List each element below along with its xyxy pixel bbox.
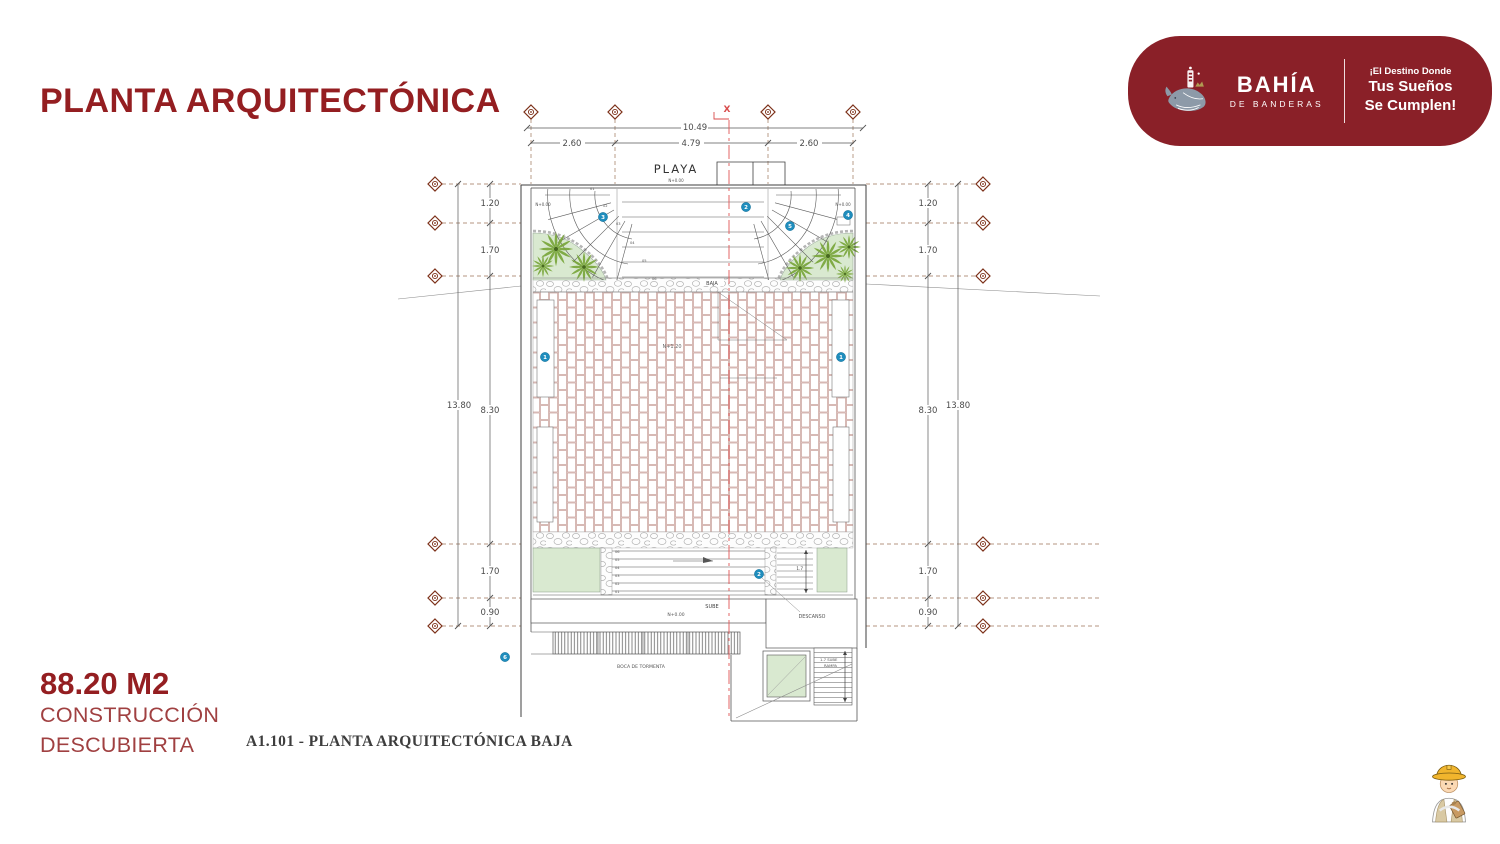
- area-label-line2: DESCUBIERTA: [40, 733, 194, 758]
- keynote-marker-1-right: 1: [836, 352, 845, 361]
- step-label: 05: [615, 558, 620, 562]
- area-label-line1: CONSTRUCCIÓN: [40, 703, 219, 728]
- dim-right-row4: 1.70: [919, 567, 938, 577]
- keynote-marker-1-left: 1: [540, 352, 549, 361]
- entry-level-left: N+0.00: [535, 202, 551, 207]
- step-label: 06: [615, 550, 620, 554]
- step-label: 01: [615, 590, 620, 594]
- slide: PLANTA ARQUITECTÓNICA BAHÍA DE BAND: [0, 0, 1500, 844]
- landing-strip: [531, 599, 766, 623]
- entry-level-right: N+0.00: [835, 202, 851, 207]
- playa-level-label: N+0.00: [668, 178, 684, 183]
- boca-de-tormenta: BOCA DE TORMENTA: [531, 632, 740, 670]
- keynote-marker-2: 2: [741, 202, 750, 211]
- courtyard-brick-paving: [533, 292, 853, 532]
- descanso-room: DESCANSO: [766, 599, 857, 648]
- svg-text:2: 2: [757, 572, 761, 578]
- stair-run-dim: 1.7: [796, 566, 803, 571]
- step-label: 02: [615, 582, 620, 586]
- svg-text:2: 2: [744, 205, 748, 211]
- lower-stair-band: 06 05 04 03 02 01 1.7: [533, 548, 853, 595]
- playa-label: PLAYA: [654, 162, 699, 176]
- svg-text:6: 6: [503, 655, 507, 661]
- keynote-marker-4: 4: [843, 210, 852, 219]
- stone-band-bottom: [533, 532, 853, 548]
- dim-top-center: 4.79: [682, 139, 701, 149]
- dim-top-total: 10.49: [683, 123, 707, 133]
- svg-text:1: 1: [839, 355, 843, 361]
- svg-text:5: 5: [788, 224, 792, 230]
- keynote-marker-6: 6: [500, 652, 509, 661]
- dim-left-row3: 8.30: [481, 406, 500, 416]
- descanso-label: DESCANSO: [799, 614, 826, 620]
- step-label: 06: [652, 277, 657, 281]
- step-label: 01: [590, 187, 595, 191]
- dim-left-row4: 1.70: [481, 567, 500, 577]
- dim-top-left: 2.60: [563, 139, 582, 149]
- step-label: 04: [615, 566, 620, 570]
- dim-top-right: 2.60: [800, 139, 819, 149]
- svg-text:4: 4: [846, 213, 850, 219]
- baja-label: BAJA: [706, 281, 718, 287]
- planter-lower-left: [533, 548, 600, 592]
- step-label: 02: [603, 204, 608, 208]
- dim-left-row5: 0.90: [481, 608, 500, 618]
- construction-worker-icon: [1424, 756, 1474, 824]
- entry-stair-step-numbers: 01 02 03 04 05 06: [590, 187, 657, 281]
- step-label: 03: [615, 574, 620, 578]
- dim-right-row1: 1.20: [919, 199, 938, 209]
- dim-right-row2: 1.70: [919, 246, 938, 256]
- dim-right-row5: 0.90: [919, 608, 938, 618]
- svg-text:1: 1: [543, 355, 547, 361]
- sube-label: SUBE: [705, 604, 718, 610]
- keynote-marker-2-stairs: 2: [754, 569, 763, 578]
- dim-left-row2: 1.70: [481, 246, 500, 256]
- svg-text:3: 3: [601, 215, 605, 221]
- step-label: 05: [642, 259, 647, 263]
- planter-lower-right: [817, 548, 847, 592]
- dim-left-total: 13.80: [447, 401, 471, 411]
- floor-plan-drawing: 10.49 2.60 4.79 2.60 1.20 1.70 8.30 1.70…: [0, 0, 1500, 844]
- ramp-label-line2: RAMPA: [824, 663, 837, 668]
- dim-right-row3: 8.30: [919, 406, 938, 416]
- landing-level-label: N+0.00: [667, 612, 684, 618]
- drawing-caption: A1.101 - PLANTA ARQUITECTÓNICA BAJA: [246, 733, 573, 751]
- area-value: 88.20 M2: [40, 666, 169, 702]
- dim-right-total: 13.80: [946, 401, 970, 411]
- keynote-marker-5: 5: [785, 221, 794, 230]
- axis-x-label: X: [724, 105, 731, 115]
- courtyard-level-label: N+1.20: [662, 344, 681, 350]
- boca-tormenta-label: BOCA DE TORMENTA: [617, 664, 666, 670]
- dim-left-row1: 1.20: [481, 199, 500, 209]
- step-label: 03: [616, 222, 621, 226]
- keynote-marker-3: 3: [598, 212, 607, 221]
- step-label: 04: [630, 241, 635, 245]
- ramp-label-line1: 1.7 SUBE: [820, 657, 838, 662]
